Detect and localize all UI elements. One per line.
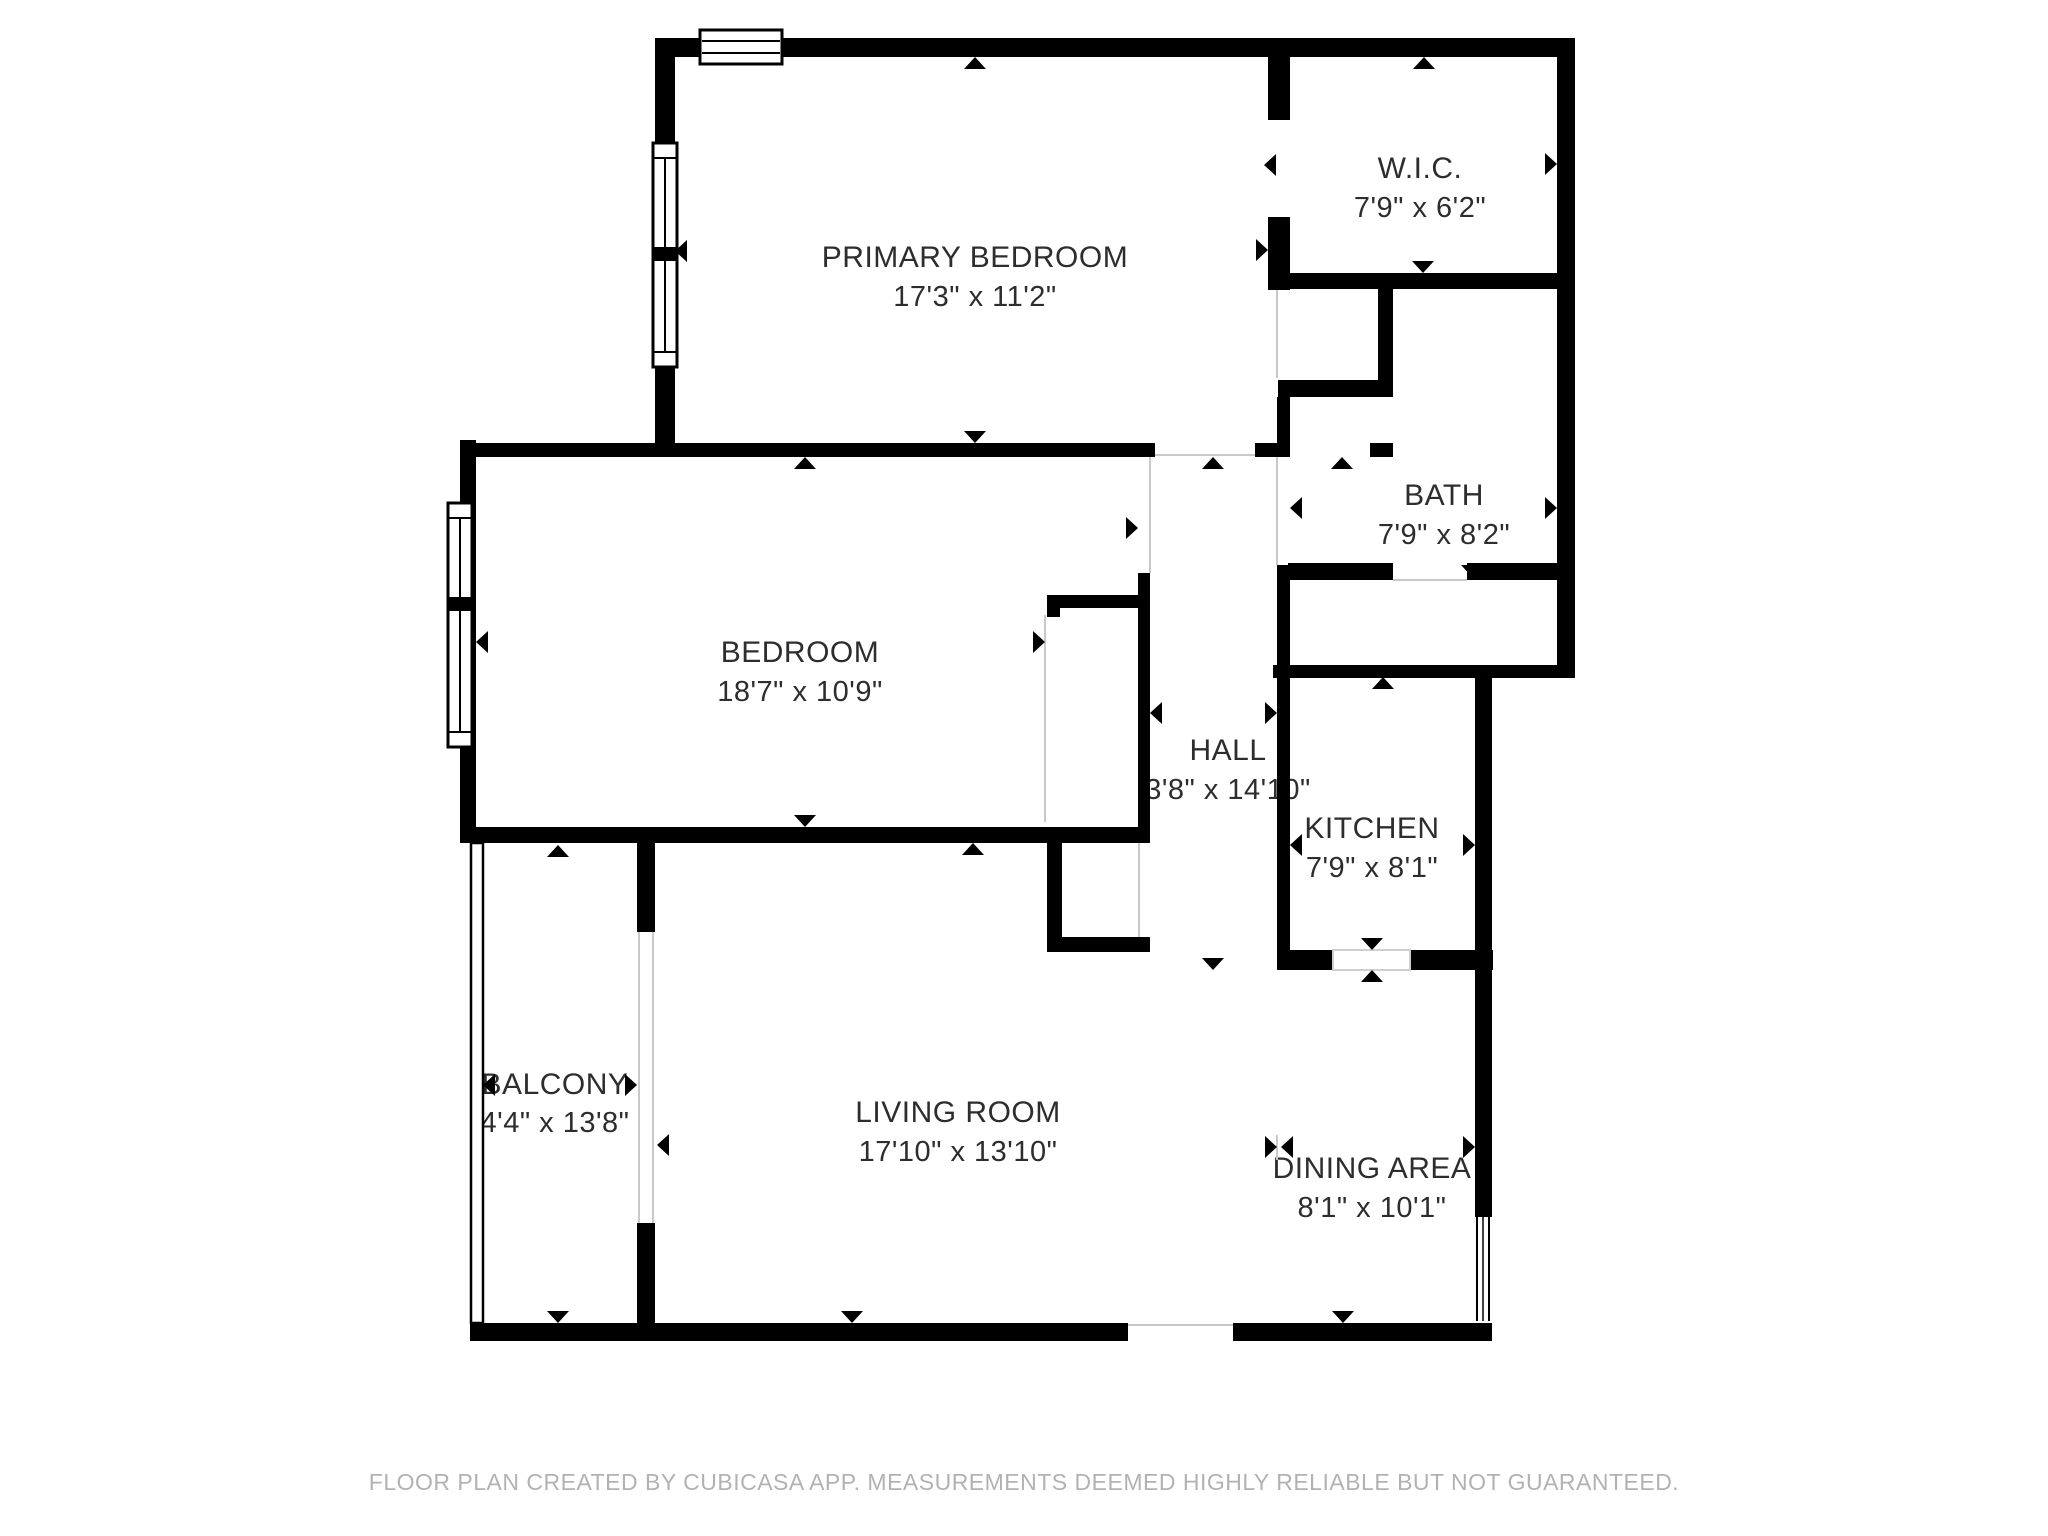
room-dims: 17'10" x 13'10" [859,1136,1058,1168]
wall-segment [1047,595,1138,608]
wall-segment [1277,950,1333,970]
measure-arrow-icon [547,1311,569,1323]
window-icon [448,503,472,747]
kitchen-door-opening [1333,950,1410,970]
measure-arrow-icon [794,815,816,827]
room-name: BATH [1404,479,1484,512]
room-name: BALCONY [482,1068,629,1101]
room-name: W.I.C. [1378,152,1463,185]
room-label-primary-bedroom: PRIMARY BEDROOM 17'3" x 11'2" [822,241,1128,313]
room-label-dining-area: DINING AREA 8'1" x 10'1" [1273,1152,1472,1224]
measure-arrow-icon [1202,457,1224,469]
wall-segment [460,827,1150,843]
measure-arrow-icon [1412,261,1434,273]
measure-arrow-icon [1361,938,1383,950]
room-label-wic: W.I.C. 7'9" x 6'2" [1354,152,1486,224]
measure-arrow-icon [1256,239,1268,261]
room-label-bath: BATH 7'9" x 8'2" [1378,479,1510,551]
room-dims: 4'4" x 13'8" [481,1107,630,1139]
wall-segment [1370,443,1393,457]
measure-arrow-icon [794,457,816,469]
measure-arrow-icon [1033,631,1045,653]
measure-arrow-icon [1545,497,1557,519]
window-icon [1475,1217,1491,1321]
room-labels: PRIMARY BEDROOM 17'3" x 11'2" W.I.C. 7'9… [481,152,1511,1224]
wall-segment [1277,565,1290,677]
window-icon [653,143,677,367]
measure-arrow-icon [1202,958,1224,970]
wall-segment [470,1323,1128,1341]
wall-segment [1288,563,1393,580]
wall-segment [1467,563,1575,580]
room-dims: 7'9" x 6'2" [1354,192,1486,224]
measure-arrow-icon [841,1311,863,1323]
door-arrow-icon [1126,517,1138,539]
footer-disclaimer: FLOOR PLAN CREATED BY CUBICASA APP. MEAS… [369,1469,1679,1495]
balcony-railing-icon [471,843,483,1323]
wall-segment [637,1223,655,1323]
measure-arrow-icon [1331,457,1353,469]
measure-arrow-icon [1332,1311,1354,1323]
floor-plan: PRIMARY BEDROOM 17'3" x 11'2" W.I.C. 7'9… [0,0,2048,1536]
room-label-balcony: BALCONY 4'4" x 13'8" [481,1068,630,1139]
measure-arrow-icon [1372,677,1394,689]
room-name: BEDROOM [721,636,880,669]
measure-arrow-icon [1290,497,1302,519]
measure-arrow-icon [625,1074,637,1096]
measure-arrow-icon [1264,154,1276,176]
wall-segment [1475,677,1492,1217]
measure-arrow-icon [1361,970,1383,982]
wall-segment [1287,273,1575,289]
wall-segment [1047,843,1062,952]
measure-arrow-icon [1463,834,1475,856]
wall-segment [637,843,655,932]
wall-segment [1277,677,1290,950]
room-label-kitchen: KITCHEN 7'9" x 8'1" [1304,812,1439,884]
room-name: LIVING ROOM [855,1096,1061,1129]
measure-arrow-icon [962,843,984,855]
room-name: HALL [1189,734,1266,767]
room-label-bedroom: BEDROOM 18'7" x 10'9" [717,636,883,708]
room-name: KITCHEN [1304,812,1439,845]
wall-segment [1268,57,1290,120]
wall-segment [1278,380,1393,397]
measure-arrow-icon [1265,702,1277,724]
wall-segment [1047,595,1060,617]
measure-arrow-icon [1413,57,1435,69]
measure-arrow-icon [964,57,986,69]
wall-segment [460,443,1155,457]
measure-arrow-icon [547,845,569,857]
room-dims: 8'1" x 10'1" [1298,1192,1447,1224]
measure-arrow-icon [476,631,488,653]
measure-arrow-icon [964,431,986,443]
wall-segment [1138,573,1150,841]
wall-segment [1557,38,1575,677]
room-name: DINING AREA [1273,1152,1472,1185]
room-label-living-room: LIVING ROOM 17'10" x 13'10" [855,1096,1061,1168]
measure-arrow-icon [657,1134,669,1156]
room-name: PRIMARY BEDROOM [822,241,1128,274]
room-dims: 18'7" x 10'9" [717,676,883,708]
wall-segment [1047,937,1150,952]
room-dims: 7'9" x 8'2" [1378,519,1510,551]
measure-arrow-icon [1545,153,1557,175]
measure-arrow-icon [1150,702,1162,724]
room-dims: 7'9" x 8'1" [1306,852,1438,884]
wall-segment [1273,665,1575,678]
room-dims: 17'3" x 11'2" [893,281,1056,313]
wall-segment [655,38,1575,57]
floor-plan-canvas: PRIMARY BEDROOM 17'3" x 11'2" W.I.C. 7'9… [0,0,2048,1536]
measure-arrow-icon [1290,834,1302,856]
wall-segment [1277,397,1290,457]
wall-segment [1233,1323,1492,1341]
window-icon [700,30,782,64]
wall-segment [1268,217,1290,290]
